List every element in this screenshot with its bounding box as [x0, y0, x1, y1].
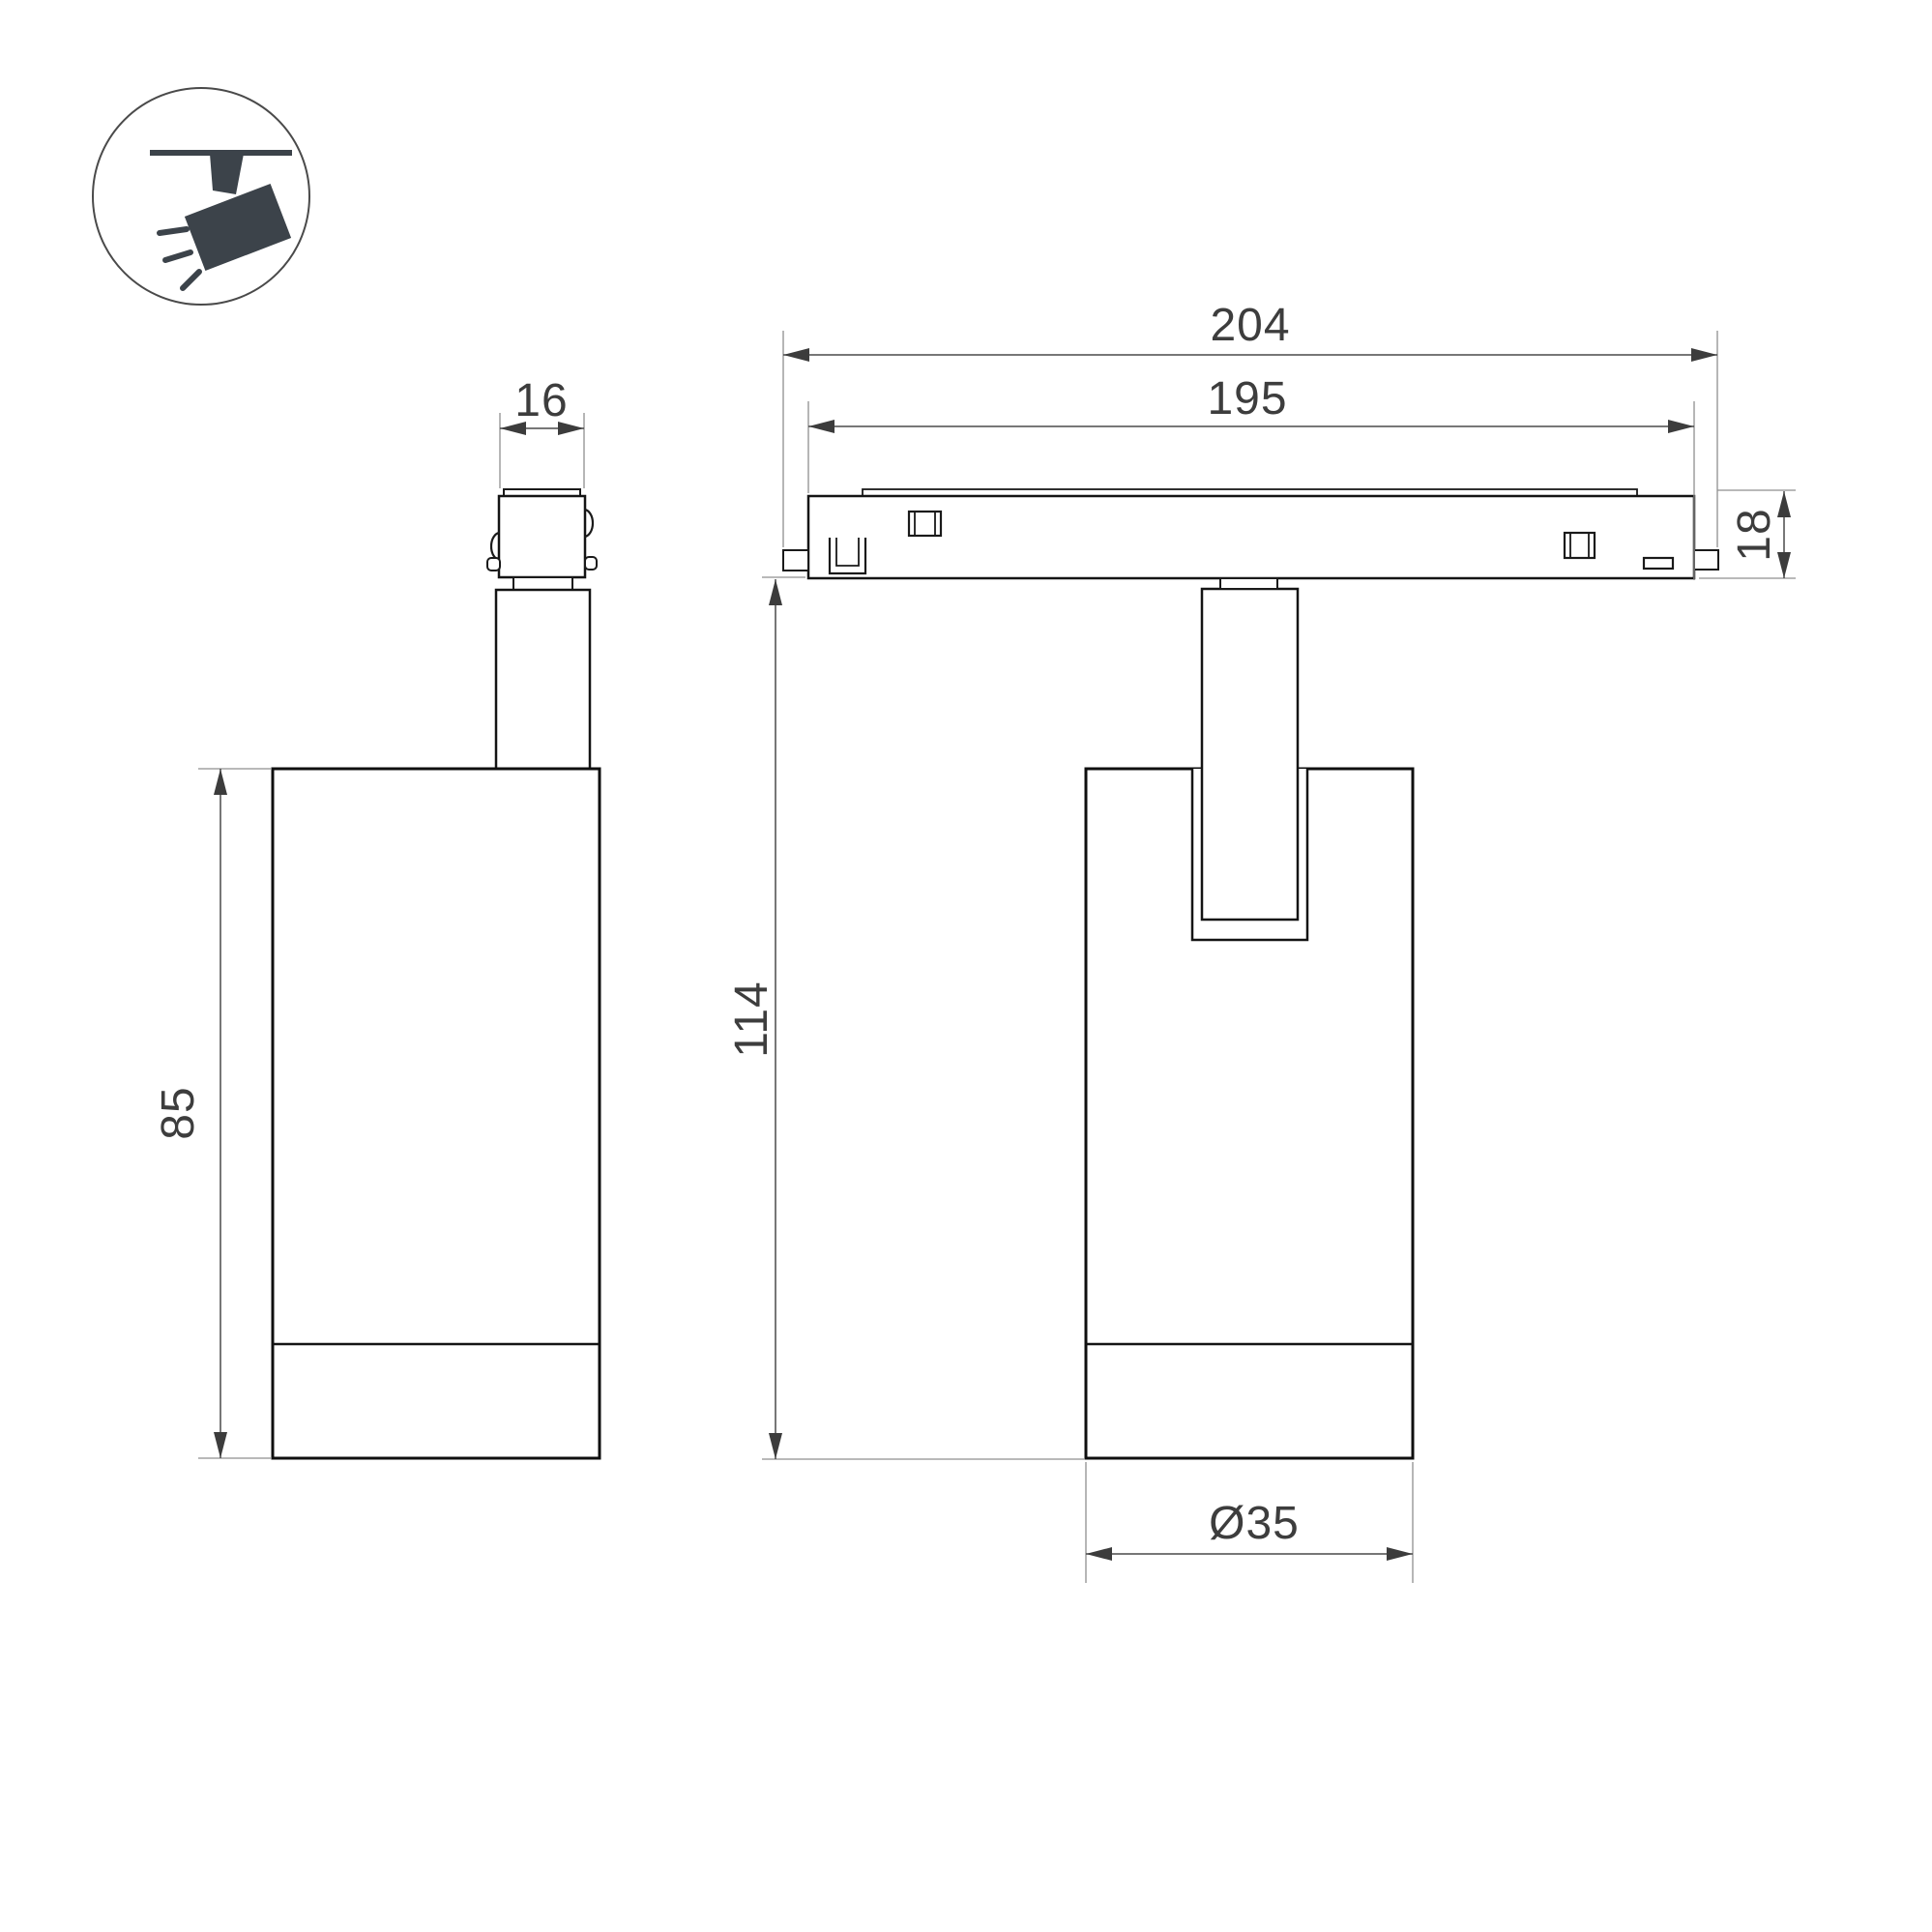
dim-label-16: 16: [514, 375, 568, 426]
dim-label-18: 18: [1729, 508, 1780, 561]
front-stem: [1202, 589, 1298, 920]
side-view: 16 85: [153, 375, 600, 1458]
dim-label-195: 195: [1207, 373, 1287, 424]
side-stem: [496, 590, 590, 769]
side-body: [273, 769, 600, 1458]
track-rail: [808, 496, 1694, 578]
track-right-endcap: [1694, 550, 1718, 570]
dimension-total-height: 114: [726, 577, 1085, 1459]
drawing-canvas: 16 85: [0, 0, 1932, 1932]
dimension-body-height: 85: [153, 769, 272, 1458]
adapter-left-tab: [487, 558, 500, 571]
ceiling-spotlight-icon: [93, 88, 309, 305]
dim-label-114: 114: [726, 981, 777, 1058]
dimension-drawing: 16 85: [0, 0, 1932, 1932]
dimension-body-diameter: Ø35: [1086, 1462, 1413, 1583]
adapter-right-tab: [585, 557, 597, 570]
dim-label-85: 85: [153, 1086, 204, 1139]
adapter-block: [499, 496, 585, 577]
dimension-adapter-width: 16: [500, 375, 584, 488]
side-stem-collar: [513, 577, 572, 590]
dim-label-204: 204: [1210, 300, 1290, 351]
front-stem-collar: [1220, 578, 1277, 589]
front-view: 204 195 18 114: [726, 300, 1796, 1583]
dim-label-d35: Ø35: [1209, 1498, 1300, 1549]
track-left-endcap: [783, 550, 808, 571]
